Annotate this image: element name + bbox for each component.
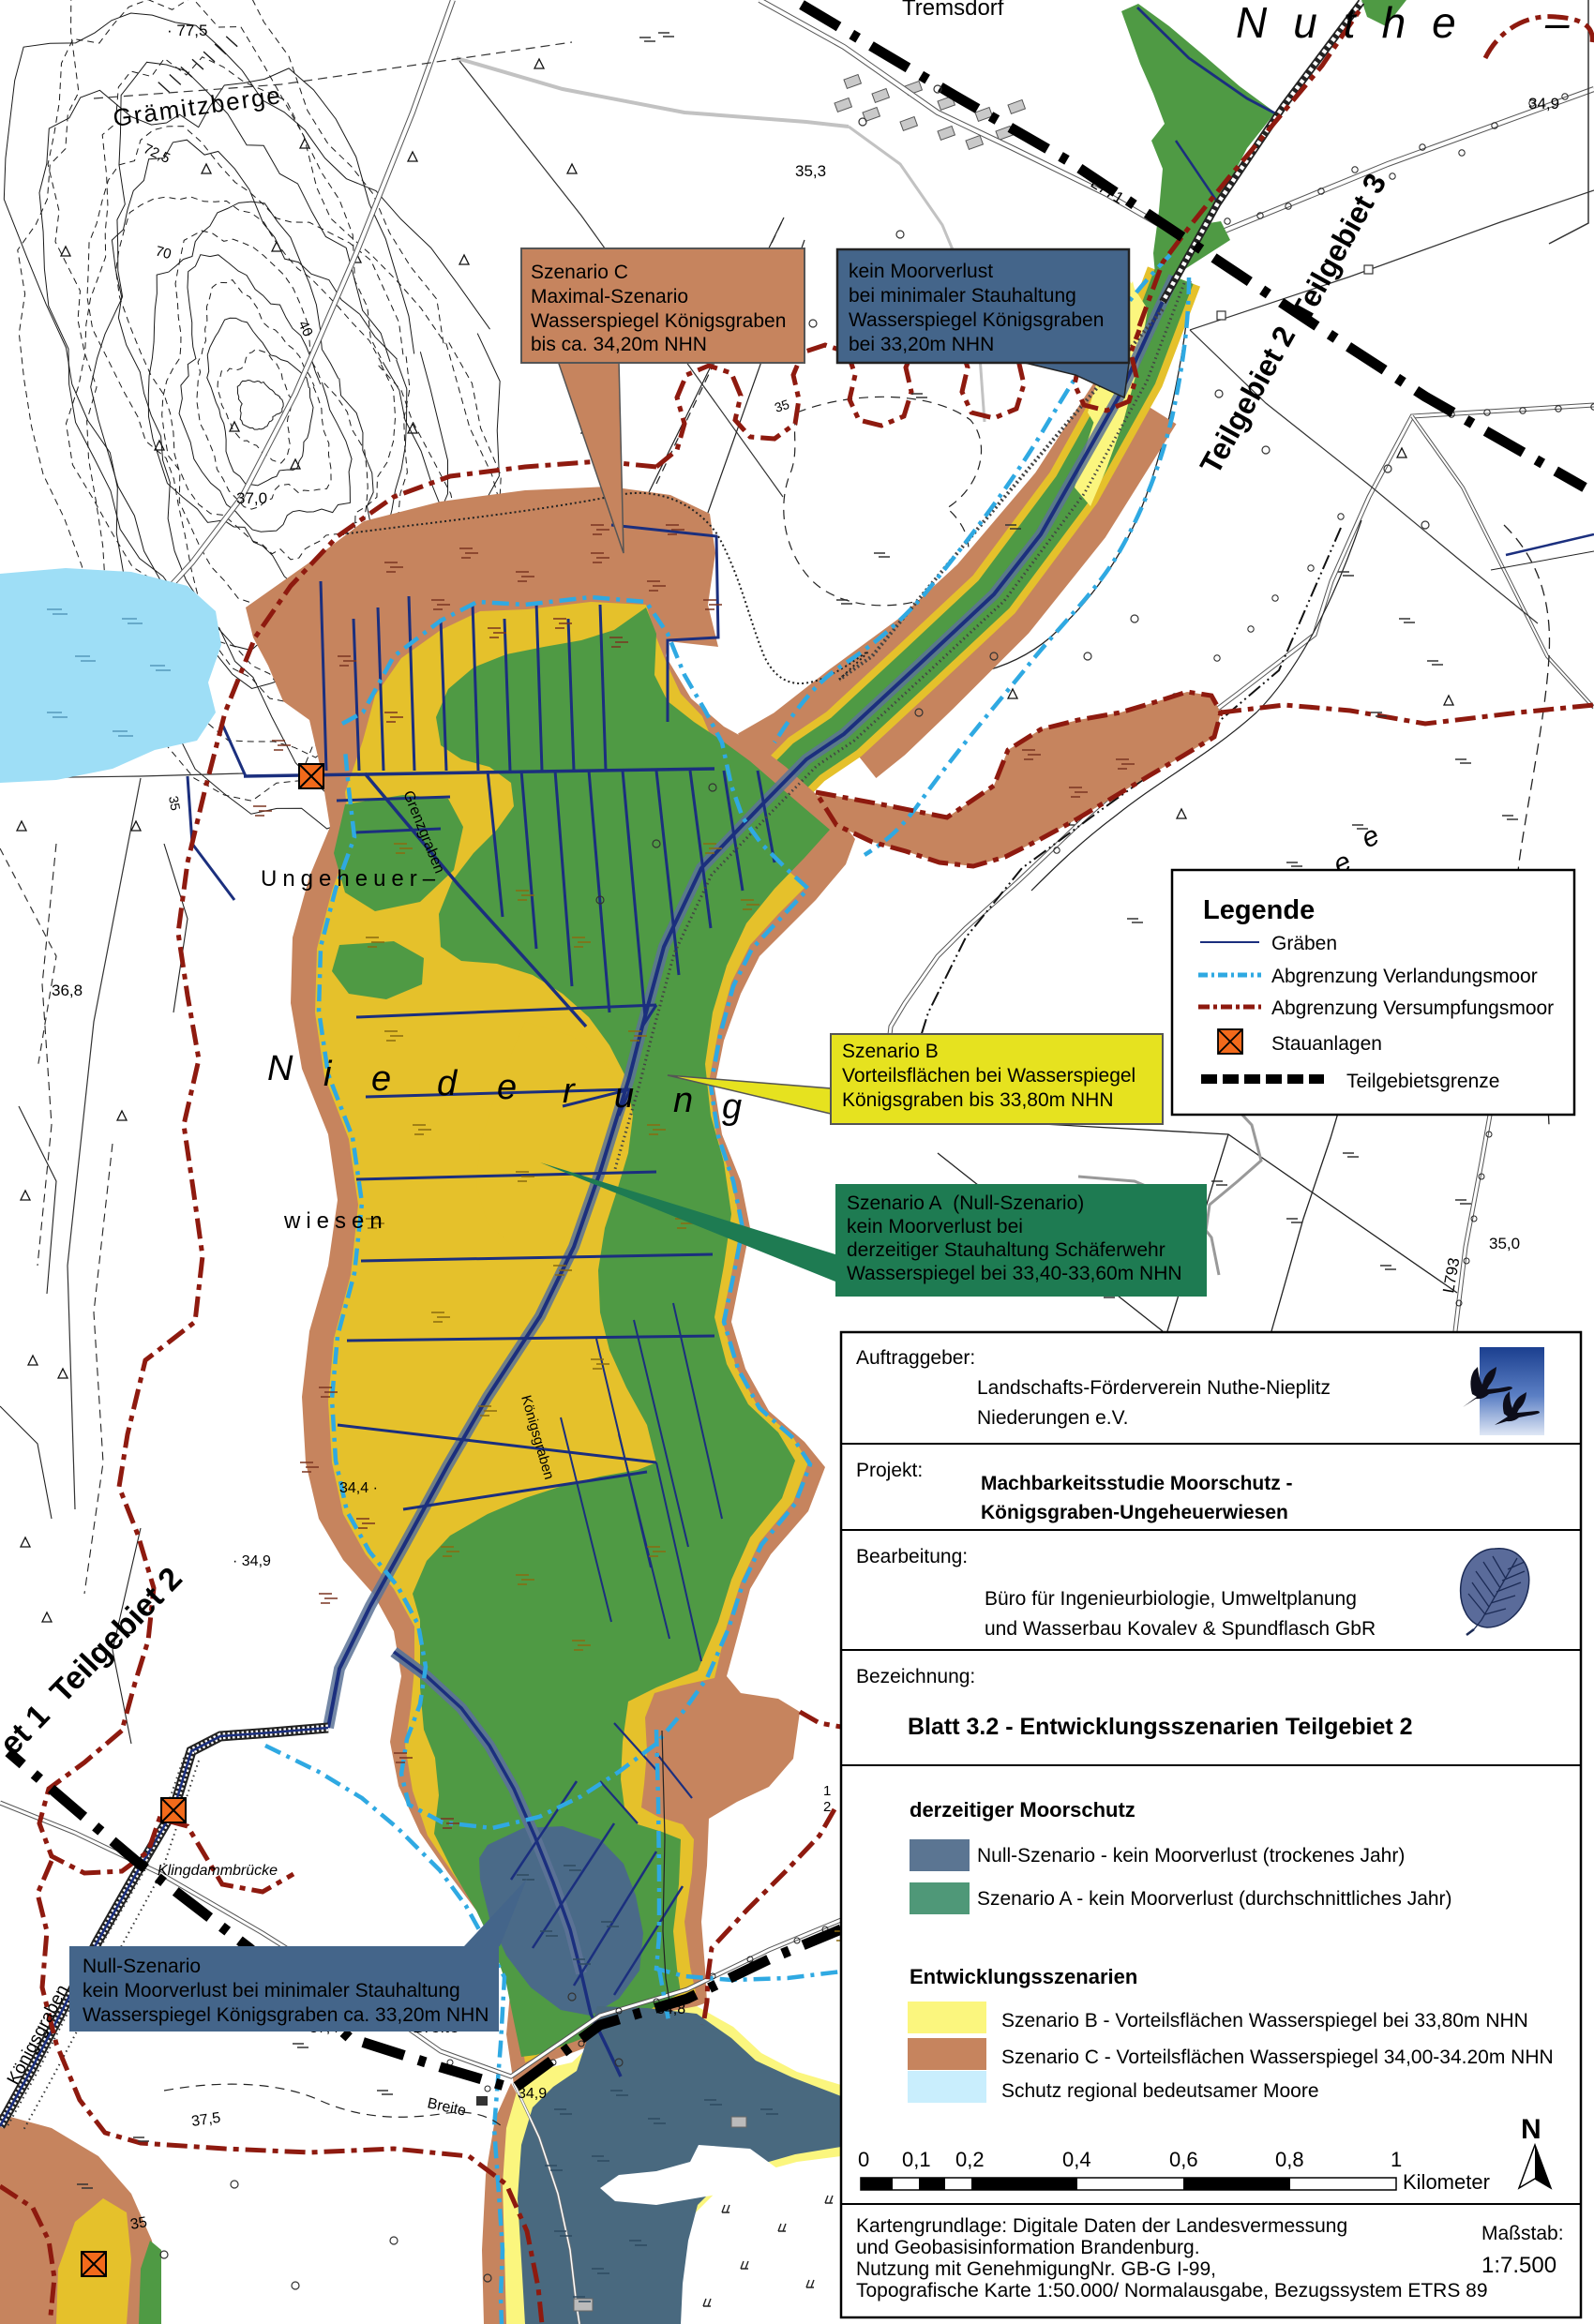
svg-text:Stauanlagen: Stauanlagen xyxy=(1271,1033,1382,1055)
svg-text:e: e xyxy=(371,1059,391,1099)
svg-text:Kilometer: Kilometer xyxy=(1403,2170,1490,2194)
svg-text:g: g xyxy=(722,1087,742,1127)
svg-text:Machbarkeitsstudie Moorschutz: Machbarkeitsstudie Moorschutz - xyxy=(981,1473,1293,1494)
svg-text:Abgrenzung Versumpfungsmoor: Abgrenzung Versumpfungsmoor xyxy=(1271,997,1554,1019)
svg-text:2: 2 xyxy=(823,1799,831,1815)
svg-text:Szenario C: Szenario C xyxy=(531,262,628,283)
svg-text:Maximal-Szenario: Maximal-Szenario xyxy=(531,286,688,307)
svg-text:Gräben: Gräben xyxy=(1271,933,1337,954)
svg-text:1: 1 xyxy=(823,1783,831,1799)
svg-text:kein Moorverlust: kein Moorverlust xyxy=(849,261,993,282)
svg-text:Bearbeitung:: Bearbeitung: xyxy=(856,1546,968,1567)
svg-text:Niederungen e.V.: Niederungen e.V. xyxy=(977,1407,1129,1429)
svg-text:1:7.500: 1:7.500 xyxy=(1481,2253,1556,2278)
svg-text:34,9: 34,9 xyxy=(1528,95,1559,112)
svg-text:Maßstab:: Maßstab: xyxy=(1481,2223,1564,2244)
svg-text:Szenario B - Vorteilsflächen W: Szenario B - Vorteilsflächen Wasserspieg… xyxy=(1001,2010,1528,2032)
svg-text:N: N xyxy=(267,1049,293,1088)
svg-text:kein Moorverlust bei: kein Moorverlust bei xyxy=(847,1216,1023,1237)
svg-text:kein Moorverlust bei minimaler: kein Moorverlust bei minimaler Stauhaltu… xyxy=(83,1980,460,2002)
svg-text:r: r xyxy=(563,1072,576,1111)
svg-text:Topografische Karte 1:50.000/: Topografische Karte 1:50.000/ Normalausg… xyxy=(856,2280,1488,2302)
svg-text:Königsgraben-Ungeheuerwiesen: Königsgraben-Ungeheuerwiesen xyxy=(981,1502,1288,1523)
svg-text:d: d xyxy=(437,1064,459,1103)
svg-text:Wasserspiegel Königsgraben: Wasserspiegel Königsgraben xyxy=(531,310,786,332)
svg-text:Legende: Legende xyxy=(1203,895,1315,925)
svg-text:0,2: 0,2 xyxy=(955,2148,985,2171)
svg-text:N: N xyxy=(1521,2114,1541,2145)
svg-text:und Geobasisinformation Brande: und Geobasisinformation Brandenburg. xyxy=(856,2237,1200,2258)
svg-text:Entwicklungsszenarien: Entwicklungsszenarien xyxy=(910,1965,1137,1988)
svg-text:Kartengrundlage: Digitale Date: Kartengrundlage: Digitale Daten der Land… xyxy=(856,2215,1347,2237)
svg-text:Klingdammbrücke: Klingdammbrücke xyxy=(158,1863,278,1879)
svg-text:Vorteilsflächen bei Wasserspie: Vorteilsflächen bei Wasserspiegel xyxy=(842,1065,1135,1087)
svg-text:34,9: 34,9 xyxy=(518,2086,547,2102)
svg-text:Szenario B: Szenario B xyxy=(842,1041,939,1062)
svg-text:Szenario A (Null-Szenario): Szenario A (Null-Szenario) xyxy=(847,1192,1084,1214)
svg-text:u: u xyxy=(614,1076,634,1116)
svg-text:n: n xyxy=(673,1081,693,1120)
svg-text:0: 0 xyxy=(858,2148,869,2171)
svg-text:wiesen: wiesen xyxy=(283,1208,388,1234)
svg-text:Königsgraben bis 33,80m NHN: Königsgraben bis 33,80m NHN xyxy=(842,1089,1114,1111)
svg-text:0,4: 0,4 xyxy=(1062,2148,1091,2171)
svg-text:· 77,5: · 77,5 xyxy=(167,22,207,39)
svg-text:Schutz regional bedeutsamer Mo: Schutz regional bedeutsamer Moore xyxy=(1001,2080,1319,2102)
svg-text:Bezeichnung:: Bezeichnung: xyxy=(856,1666,975,1687)
svg-text:34,8: 34,8 xyxy=(656,2002,685,2017)
svg-text:Landschafts-Förderverein Nuthe: Landschafts-Förderverein Nuthe-Nieplitz xyxy=(977,1377,1331,1399)
svg-text:Büro für Ingenieurbiologie, Um: Büro für Ingenieurbiologie, Umweltplanun… xyxy=(985,1588,1357,1610)
svg-text:Szenario A - kein Moorverlust: Szenario A - kein Moorverlust (durchschn… xyxy=(977,1888,1452,1910)
svg-text:Abgrenzung Verlandungsmoor: Abgrenzung Verlandungsmoor xyxy=(1271,966,1538,987)
svg-text:derzeitiger Stauhaltung Schäfe: derzeitiger Stauhaltung Schäferwehr xyxy=(847,1239,1165,1261)
svg-text:Auftraggeber:: Auftraggeber: xyxy=(856,1347,975,1369)
svg-text:Nutzung mit GenehmigungNr. GB-: Nutzung mit GenehmigungNr. GB-G I-99, xyxy=(856,2258,1216,2280)
svg-text:bis ca. 34,20m NHN: bis ca. 34,20m NHN xyxy=(531,334,707,355)
svg-text:Ungeheuer–: Ungeheuer– xyxy=(261,866,441,892)
svg-text:35: 35 xyxy=(166,795,183,812)
svg-text:derzeitiger Moorschutz: derzeitiger Moorschutz xyxy=(910,1798,1135,1822)
svg-text:35: 35 xyxy=(129,2214,149,2233)
svg-text:bei 33,20m NHN: bei 33,20m NHN xyxy=(849,334,994,355)
svg-text:Wasserspiegel Königsgraben ca.: Wasserspiegel Königsgraben ca. 33,20m NH… xyxy=(83,2004,489,2026)
svg-text:36,8: 36,8 xyxy=(52,982,83,999)
svg-text:Wasserspiegel Königsgraben: Wasserspiegel Königsgraben xyxy=(849,309,1104,331)
svg-text:Szenario C - Vorteilsflächen W: Szenario C - Vorteilsflächen Wasserspieg… xyxy=(1001,2047,1554,2068)
svg-text:· 34,9: · 34,9 xyxy=(233,1553,271,1569)
svg-text:Nuthe: Nuthe xyxy=(1236,0,1482,47)
svg-text:Null-Szenario: Null-Szenario xyxy=(83,1956,201,1977)
svg-text:Null-Szenario - kein Moorverlu: Null-Szenario - kein Moorverlust (trocke… xyxy=(977,1845,1405,1867)
svg-text:e: e xyxy=(497,1068,517,1107)
svg-text:35,3: 35,3 xyxy=(795,162,826,180)
svg-text:34,4 ·: 34,4 · xyxy=(339,1480,378,1496)
svg-text:und Wasserbau Kovalev & Spundf: und Wasserbau Kovalev & Spundflasch GbR xyxy=(985,1618,1376,1640)
svg-text:1: 1 xyxy=(1391,2148,1402,2171)
svg-text:bei minimaler Stauhaltung: bei minimaler Stauhaltung xyxy=(849,285,1076,307)
svg-text:Wasserspiegel bei 33,40-33,60m: Wasserspiegel bei 33,40-33,60m NHN xyxy=(847,1263,1182,1284)
svg-text:Teilgebietsgrenze: Teilgebietsgrenze xyxy=(1346,1071,1499,1092)
svg-text:0,1: 0,1 xyxy=(902,2148,931,2171)
svg-text:0,8: 0,8 xyxy=(1275,2148,1304,2171)
svg-text:0,6: 0,6 xyxy=(1169,2148,1198,2171)
svg-text:Tremsdorf: Tremsdorf xyxy=(902,0,1004,21)
svg-text:37,0: 37,0 xyxy=(236,489,267,507)
svg-text:Projekt:: Projekt: xyxy=(856,1460,923,1481)
svg-text:Blatt 3.2 - Entwicklungsszenar: Blatt 3.2 - Entwicklungsszenarien Teilge… xyxy=(908,1714,1413,1740)
svg-text:35,0: 35,0 xyxy=(1489,1235,1520,1252)
svg-text:–: – xyxy=(1544,0,1570,47)
